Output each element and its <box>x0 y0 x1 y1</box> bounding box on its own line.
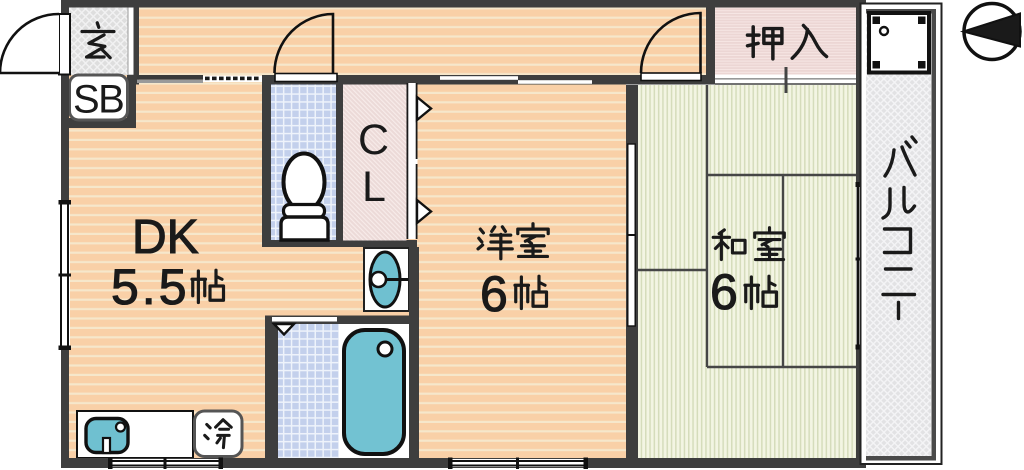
svg-text:5.5: 5.5 <box>111 259 190 315</box>
svg-text:L: L <box>362 163 386 211</box>
svg-text:6: 6 <box>480 266 508 322</box>
svg-text:C: C <box>358 116 389 164</box>
svg-text:6: 6 <box>710 264 738 320</box>
svg-text:DK: DK <box>132 211 199 264</box>
svg-text:SB: SB <box>73 78 123 122</box>
